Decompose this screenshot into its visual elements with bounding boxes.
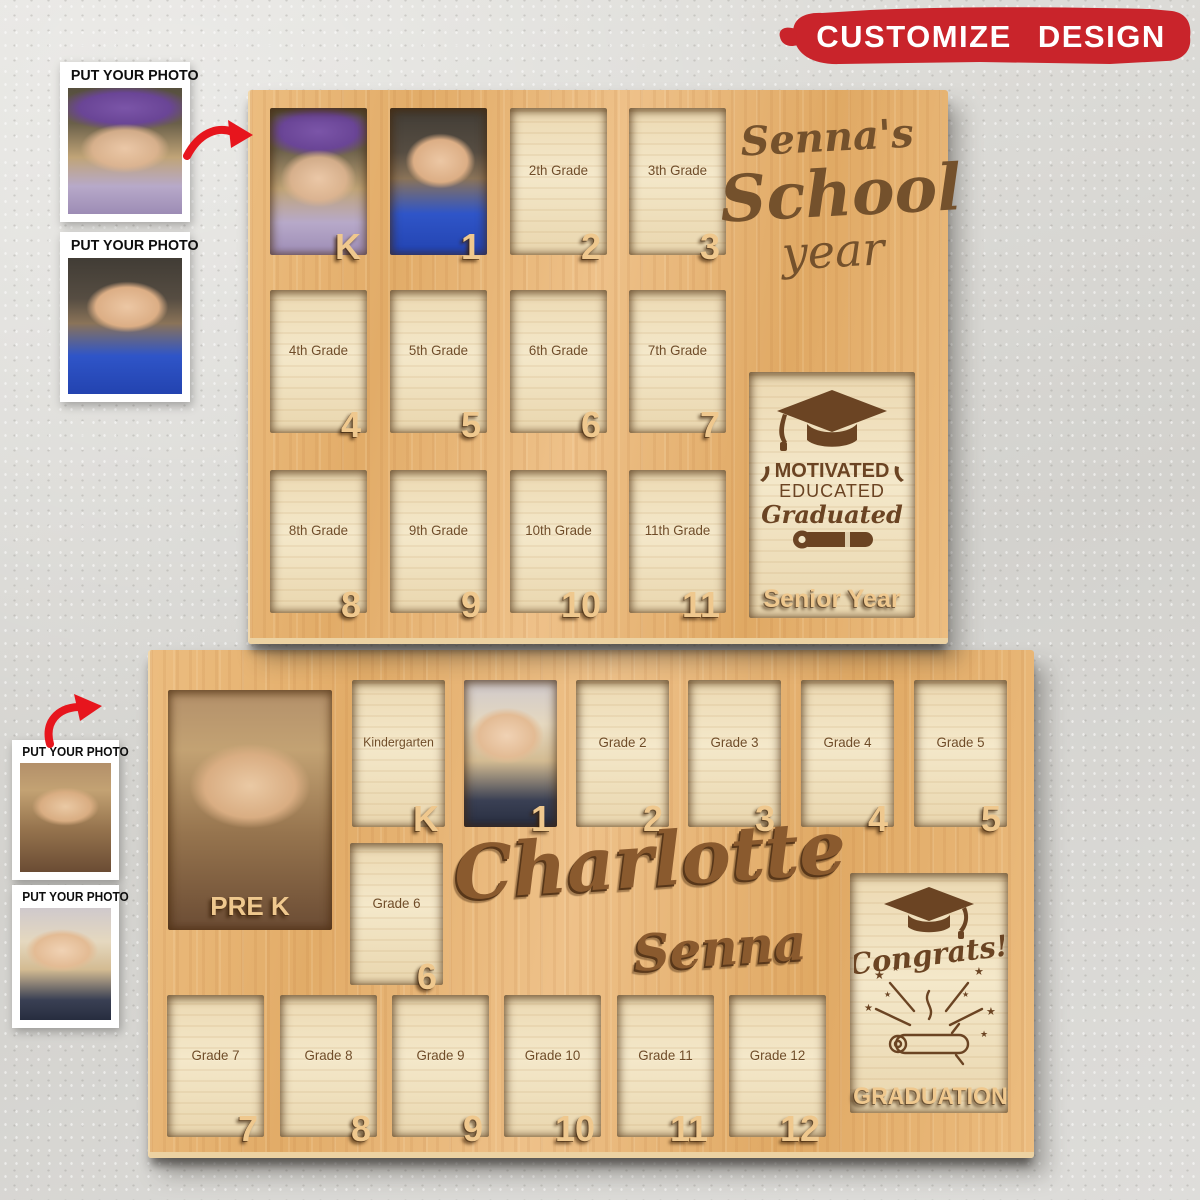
slot-number: 1 (461, 229, 481, 265)
slot-label: Grade 6 (352, 895, 440, 911)
graduation-cap-icon (884, 887, 974, 921)
slot-grade-7: Grade 7 7 (167, 995, 264, 1137)
slot-label: Grade 10 (506, 1047, 598, 1063)
graduation-caption: GRADUATION (853, 1083, 1005, 1111)
slot-label: Grade 11 (619, 1047, 711, 1063)
product-promo-image: CUSTOMIZE DESIGN PUT YOUR PHOTO PUT YOUR… (0, 0, 1200, 1200)
slot-label: 11th Grade (631, 522, 723, 538)
slot-grade-7: 7th Grade 7 (629, 290, 726, 433)
star-icon: ★ (962, 990, 969, 999)
star-icon: ★ (874, 968, 885, 982)
put-your-photo-label: PUT YOUR PHOTO (22, 888, 108, 908)
photo-upload-card-3[interactable]: PUT YOUR PHOTO (12, 740, 119, 880)
slot-number: 9 (463, 1111, 483, 1147)
slot-label: 3th Grade (631, 162, 723, 178)
slot-label: Grade 7 (169, 1047, 261, 1063)
star-icon: ★ (986, 1006, 996, 1018)
slot-label: Grade 2 (578, 734, 666, 750)
slot-grade-10: 10th Grade 10 (510, 470, 607, 613)
brush-splatter (780, 28, 797, 46)
put-your-photo-label: PUT YOUR PHOTO (71, 65, 179, 88)
slot-grade-11: Grade 11 11 (617, 995, 714, 1137)
slot-label: Grade 3 (690, 734, 778, 750)
slot-label: 10th Grade (512, 522, 604, 538)
slot-number: 4 (868, 801, 888, 837)
slot-label: 4th Grade (272, 342, 364, 358)
svg-text:MOTIVATED: MOTIVATED (775, 460, 890, 482)
diploma-scroll-icon (801, 532, 873, 547)
slot-number: 2 (581, 229, 601, 265)
motivated-educated-graduated-graphic: MOTIVATED EDUCATED Graduated (757, 384, 907, 556)
red-arrow-icon (183, 118, 253, 162)
slot-label: 7th Grade (631, 342, 723, 358)
congrats-graphic: Congrats! ★ ★ ★ ★ ★ ★ ★ ★ (854, 879, 1004, 1071)
slot-number: 11 (682, 587, 720, 623)
slot-number: 5 (981, 801, 1001, 837)
slot-label: 9th Grade (392, 522, 484, 538)
slot-grade-4: 4th Grade 4 (270, 290, 367, 433)
star-icon: ★ (892, 964, 899, 973)
slot-label: 5th Grade (392, 342, 484, 358)
slot-kindergarten: Kindergarten K (352, 680, 445, 827)
slot-grade-3: 3th Grade 3 (629, 108, 726, 255)
put-your-photo-label: PUT YOUR PHOTO (71, 235, 179, 258)
banner-label: CUSTOMIZE DESIGN (816, 19, 1165, 54)
svg-text:EDUCATED: EDUCATED (779, 481, 885, 501)
graduation-slot: Congrats! ★ ★ ★ ★ ★ ★ ★ ★ (850, 873, 1008, 1113)
slot-label: 8th Grade (272, 522, 364, 538)
photo-upload-card-1[interactable]: PUT YOUR PHOTO (60, 62, 190, 222)
slot-grade-2: Grade 2 2 (576, 680, 669, 827)
slot-number: K (413, 801, 439, 837)
senior-year-slot: MOTIVATED EDUCATED Graduated Senior Year (749, 372, 915, 618)
slot-number: 10 (555, 1111, 595, 1147)
slot-number: 10 (561, 587, 601, 623)
slot-1-photo: 1 (390, 108, 487, 255)
sample-photo-blonde-girl (20, 908, 111, 1020)
slot-number: K (335, 229, 361, 265)
slot-number: 7 (238, 1111, 258, 1147)
slot-number: 5 (461, 407, 481, 443)
school-years-board-bottom: PRE K Kindergarten K 1 Grade 2 2 Grade 3… (148, 650, 1034, 1158)
slot-label: Kindergarten (354, 734, 442, 749)
slot-number: 11 (670, 1111, 708, 1147)
red-arrow-icon (40, 694, 106, 748)
prek-caption: PRE K (168, 891, 332, 922)
star-icon: ★ (864, 1003, 873, 1014)
slot-grade-9: Grade 9 9 (392, 995, 489, 1137)
slot-label: Grade 8 (282, 1047, 374, 1063)
slot-grade-6: 6th Grade 6 (510, 290, 607, 433)
slot-grade-10: Grade 10 10 (504, 995, 601, 1137)
personalized-name-line2: Senna (578, 908, 861, 986)
slot-number: 4 (341, 407, 361, 443)
sample-photo-warm-portrait-girl (20, 763, 111, 872)
title-school: School (718, 155, 941, 234)
slot-number: 7 (700, 407, 720, 443)
slot-number: 9 (461, 587, 481, 623)
slot-label: Grade 9 (394, 1047, 486, 1063)
slot-number: 8 (351, 1111, 371, 1147)
slot-grade-8: 8th Grade 8 (270, 470, 367, 613)
photo-upload-card-2[interactable]: PUT YOUR PHOTO (60, 232, 190, 402)
customize-design-banner: CUSTOMIZE DESIGN (778, 4, 1192, 70)
photo-upload-card-4[interactable]: PUT YOUR PHOTO (12, 885, 119, 1028)
slot-grade-3: Grade 3 3 (688, 680, 781, 827)
svg-text:Graduated: Graduated (761, 500, 903, 529)
slot-grade1-photo: 1 (464, 680, 557, 827)
slot-label: Grade 12 (731, 1047, 823, 1063)
slot-number: 6 (417, 959, 437, 995)
senior-year-caption: Senior Year (749, 585, 915, 614)
slot-number: 12 (780, 1111, 820, 1147)
slot-grade-5: 5th Grade 5 (390, 290, 487, 433)
star-icon: ★ (884, 990, 891, 999)
slot-grade-2: 2th Grade 2 (510, 108, 607, 255)
slot-grade-12: Grade 12 12 (729, 995, 826, 1137)
slot-k-photo: K (270, 108, 367, 255)
board-title: Senna's School year (716, 108, 944, 279)
slot-grade-11: 11th Grade 11 (629, 470, 726, 613)
slot-label: 6th Grade (512, 342, 604, 358)
slot-grade-6: Grade 6 6 (350, 843, 443, 985)
slot-number: 8 (341, 587, 361, 623)
slot-grade-5: Grade 5 5 (914, 680, 1007, 827)
slot-label: 2th Grade (512, 162, 604, 178)
slot-prek-photo: PRE K (168, 690, 332, 930)
slot-number: 6 (581, 407, 601, 443)
star-icon: ★ (974, 966, 984, 978)
slot-grade-9: 9th Grade 9 (390, 470, 487, 613)
slot-label: Grade 5 (916, 734, 1004, 750)
star-icon: ★ (980, 1029, 988, 1039)
slot-grade-8: Grade 8 8 (280, 995, 377, 1137)
slot-label: Grade 4 (803, 734, 891, 750)
sample-photo-blue-dress-girl (68, 258, 182, 394)
school-years-board-top: K 1 2th Grade 2 3th Grade 3 4th Grade 4 … (248, 90, 948, 644)
slot-number: 3 (700, 229, 720, 265)
graduation-cap-icon (777, 390, 887, 432)
sample-photo-flower-crown-girl (68, 88, 182, 214)
